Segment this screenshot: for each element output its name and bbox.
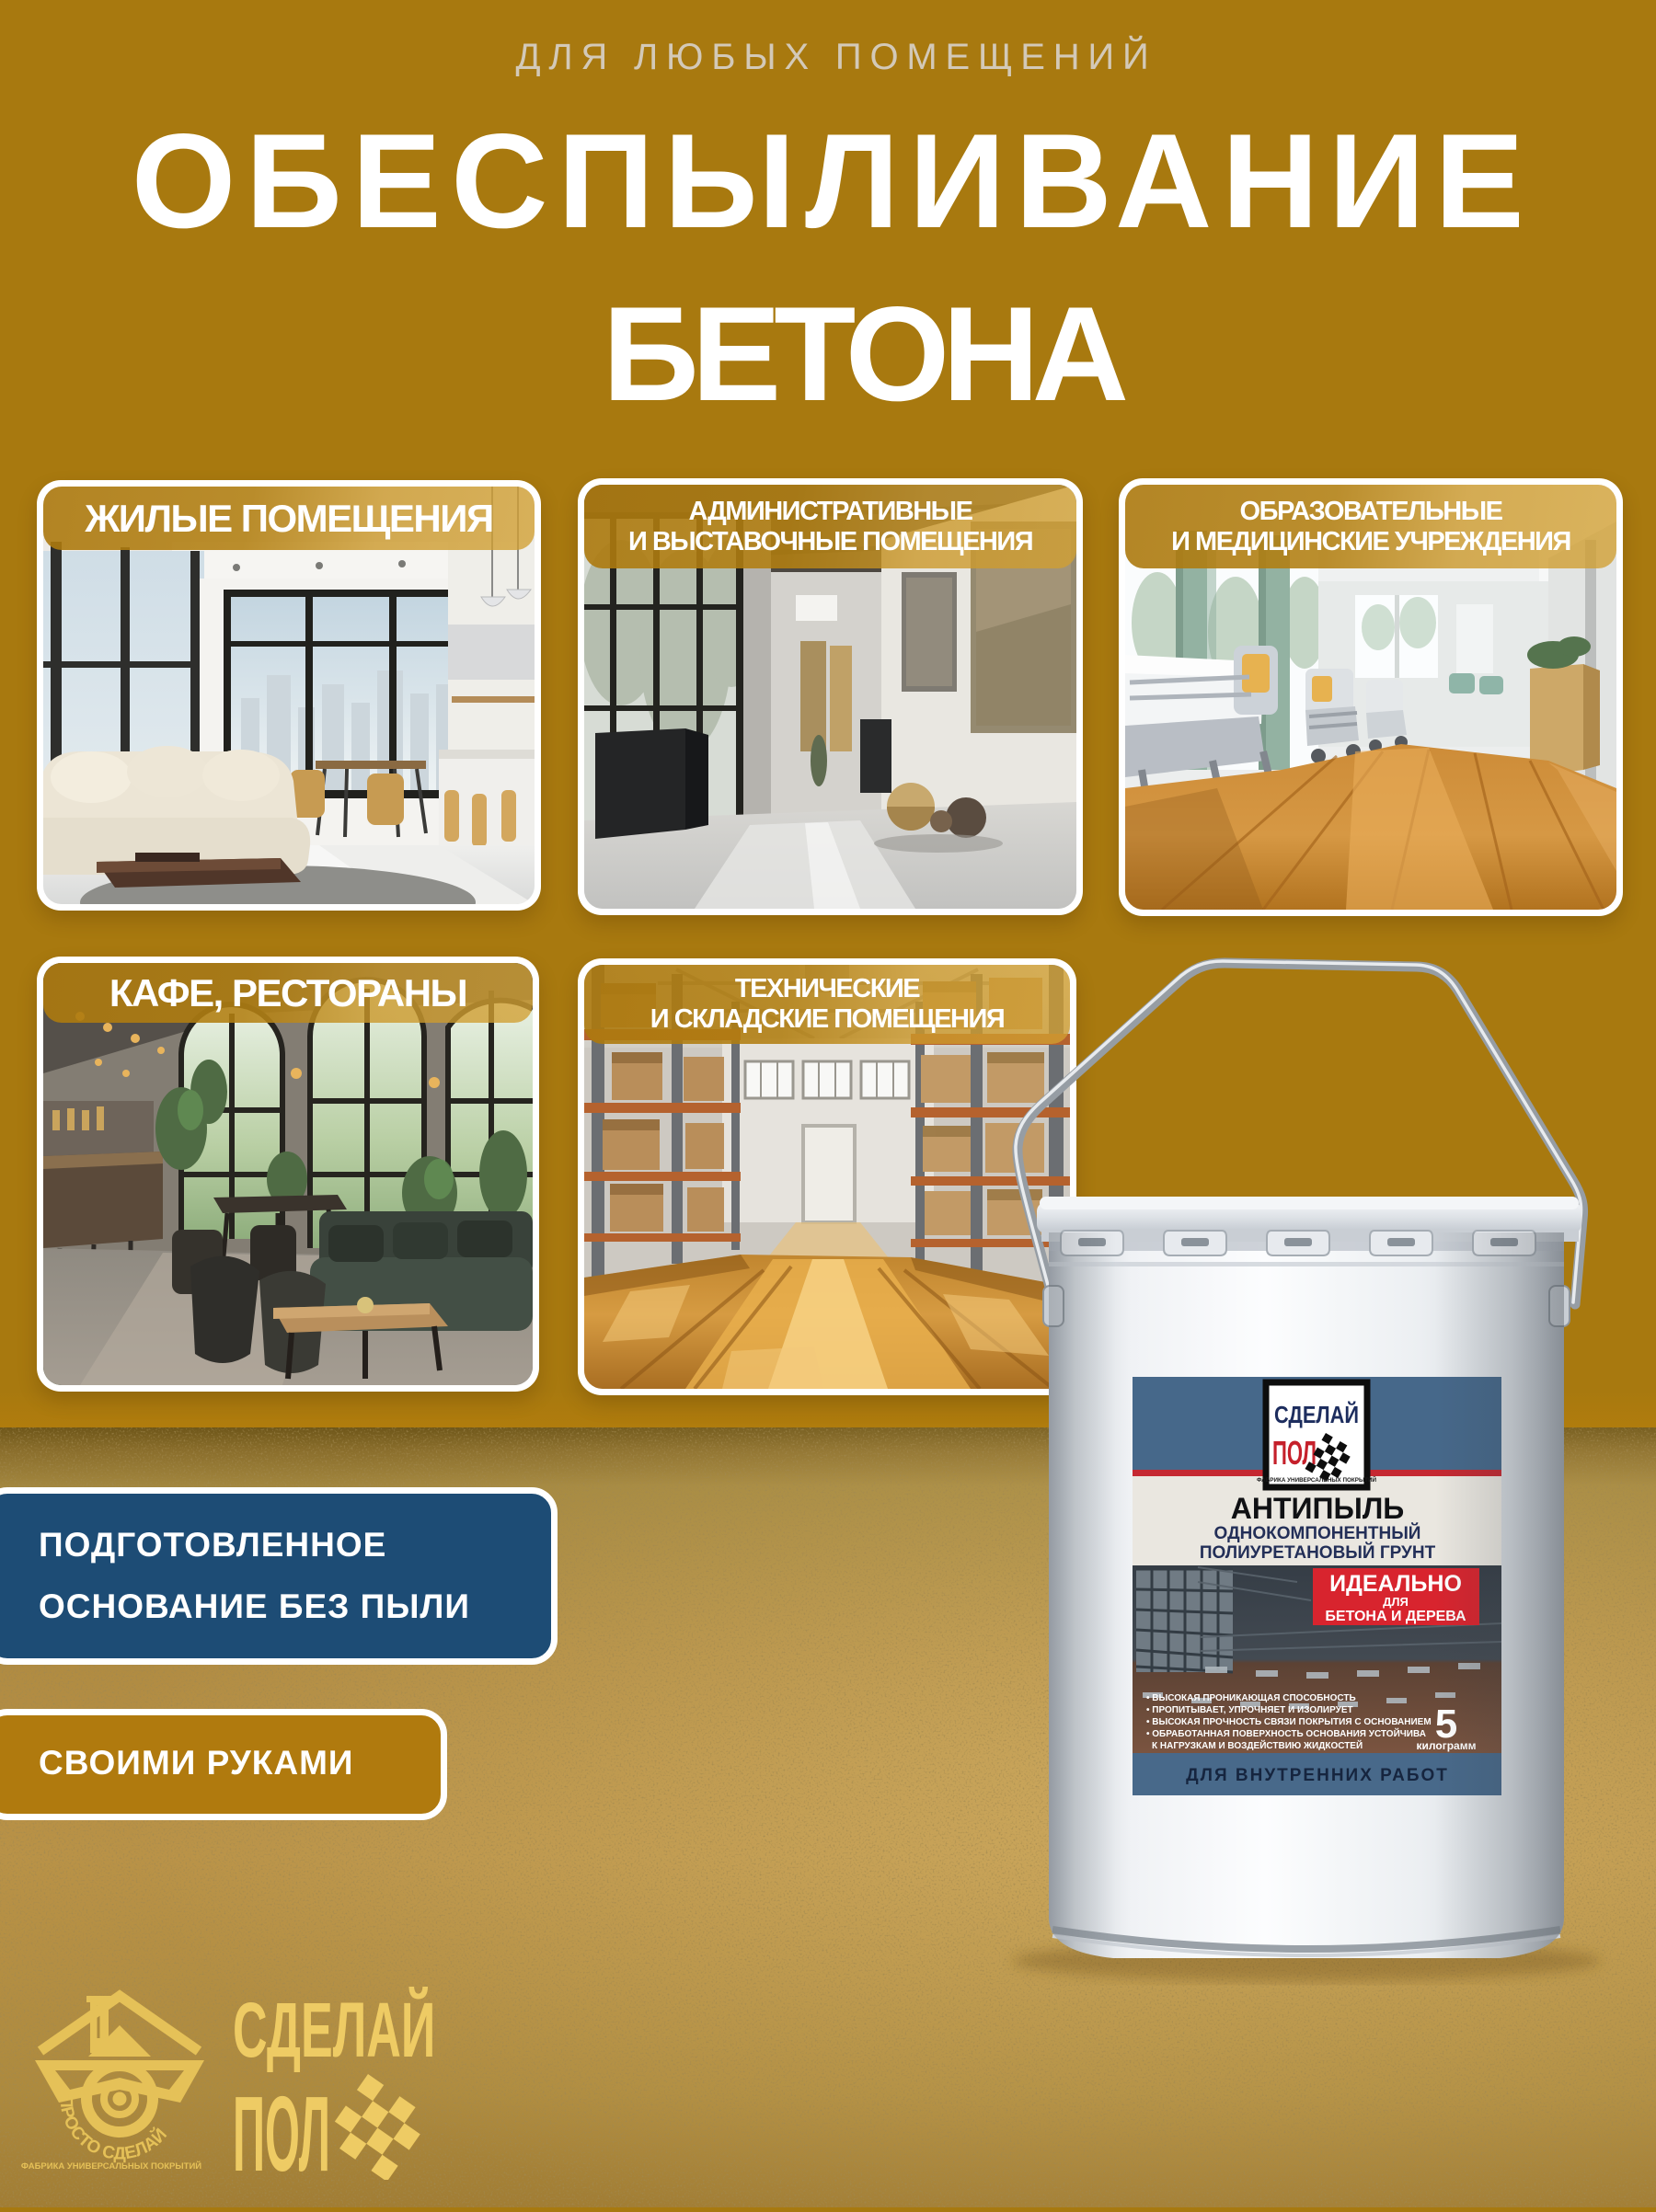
svg-text:СДЕЛАЙ: СДЕЛАЙ bbox=[233, 1987, 435, 2073]
svg-text:ПОЛ: ПОЛ bbox=[233, 2073, 330, 2180]
